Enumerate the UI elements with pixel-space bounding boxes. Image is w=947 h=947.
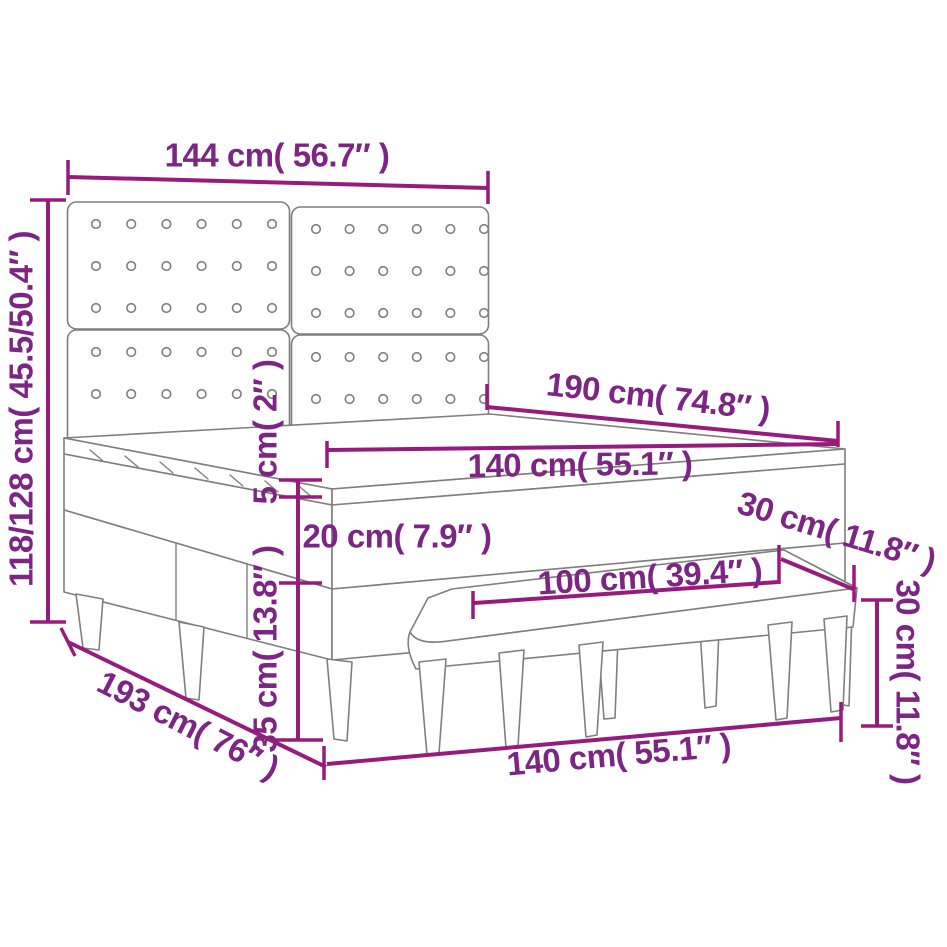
label-bench-height: 30 cm( 11.8″ )	[889, 579, 926, 784]
tufting-button	[379, 353, 388, 362]
tufting-button	[413, 395, 422, 404]
tufting-button	[312, 225, 321, 234]
tufting-button	[446, 353, 455, 362]
tufting-button	[233, 390, 242, 399]
tufting-button	[197, 390, 206, 399]
tufting-button	[446, 309, 455, 318]
tufting-button	[480, 267, 489, 276]
tufting-button	[162, 304, 171, 313]
tufting-button	[127, 348, 136, 357]
bench-leg	[824, 616, 847, 712]
tufting-button	[233, 348, 242, 357]
tufting-button	[233, 262, 242, 271]
tufting-button	[413, 353, 422, 362]
tufting-button	[379, 225, 388, 234]
bench-leg	[579, 642, 603, 737]
label-total-height: 118/128 cm( 45.5/50.4″ )	[3, 231, 40, 587]
tufting-button	[233, 220, 242, 229]
label-frame-width: 140 cm( 55.1″ )	[505, 726, 732, 782]
label-mattress-height: 20 cm( 7.9″ )	[302, 518, 491, 555]
bench-leg	[768, 622, 792, 720]
tufting-button	[312, 353, 321, 362]
bench-leg	[419, 659, 446, 755]
tufting-button	[162, 262, 171, 271]
tufting-button	[127, 390, 136, 399]
dim-frame-width: 140 cm( 55.1″ )	[324, 702, 841, 782]
dim-bench-height: 30 cm( 11.8″ )	[861, 579, 926, 784]
tufting-button	[162, 220, 171, 229]
tufting-button	[127, 262, 136, 271]
tufting-button	[162, 348, 171, 357]
tufting-button	[446, 267, 455, 276]
tufting-button	[379, 309, 388, 318]
tufting-button	[92, 390, 101, 399]
tufting-button	[268, 348, 277, 357]
bench-leg	[499, 650, 524, 748]
tufting-button	[92, 304, 101, 313]
tufting-button	[92, 348, 101, 357]
bed-drawing	[64, 202, 857, 755]
tufting-button	[268, 262, 277, 271]
tufting-button	[268, 304, 277, 313]
tufting-button	[345, 353, 354, 362]
tufting-button	[197, 220, 206, 229]
tufting-button	[312, 395, 321, 404]
tufting-button	[197, 348, 206, 357]
tufting-button	[197, 262, 206, 271]
tufting-button	[446, 395, 455, 404]
dim-total-height: 118/128 cm( 45.5/50.4″ )	[3, 200, 66, 622]
tufting-button	[345, 309, 354, 318]
tufting-button	[345, 395, 354, 404]
label-base-height: 35 cm( 13.8″ )	[247, 546, 284, 753]
tufting-button	[480, 225, 489, 234]
label-pillow-top-height: 5 cm( 2″ )	[247, 360, 284, 505]
tufting-button	[268, 220, 277, 229]
tufting-button	[127, 220, 136, 229]
tufting-button	[312, 309, 321, 318]
label-bed-length: 190 cm( 74.8″ )	[545, 365, 773, 427]
tufting-button	[345, 267, 354, 276]
product-dimension-diagram: 144 cm( 56.7″ ) 118/128 cm( 45.5/50.4″ )…	[0, 0, 947, 947]
tufting-button	[446, 225, 455, 234]
bed-leg	[76, 594, 103, 650]
tufting-button	[233, 304, 242, 313]
tufting-button	[127, 304, 136, 313]
diagram-canvas: 144 cm( 56.7″ ) 118/128 cm( 45.5/50.4″ )…	[0, 0, 947, 947]
tufting-button	[480, 353, 489, 362]
tufting-button	[92, 220, 101, 229]
bed-leg	[327, 659, 352, 741]
tufting-button	[480, 309, 489, 318]
dim-headboard-width: 144 cm( 56.7″ )	[68, 137, 488, 204]
tufting-button	[197, 304, 206, 313]
label-mattress-width: 140 cm( 55.1″ )	[467, 444, 692, 484]
tufting-button	[92, 262, 101, 271]
tufting-button	[413, 225, 422, 234]
tufting-button	[162, 390, 171, 399]
tufting-button	[413, 309, 422, 318]
tufting-button	[345, 225, 354, 234]
label-headboard-width: 144 cm( 56.7″ )	[165, 137, 390, 174]
tufting-button	[312, 267, 321, 276]
bed-leg	[179, 622, 204, 700]
tufting-button	[379, 395, 388, 404]
tufting-button	[413, 267, 422, 276]
tufting-button	[379, 267, 388, 276]
